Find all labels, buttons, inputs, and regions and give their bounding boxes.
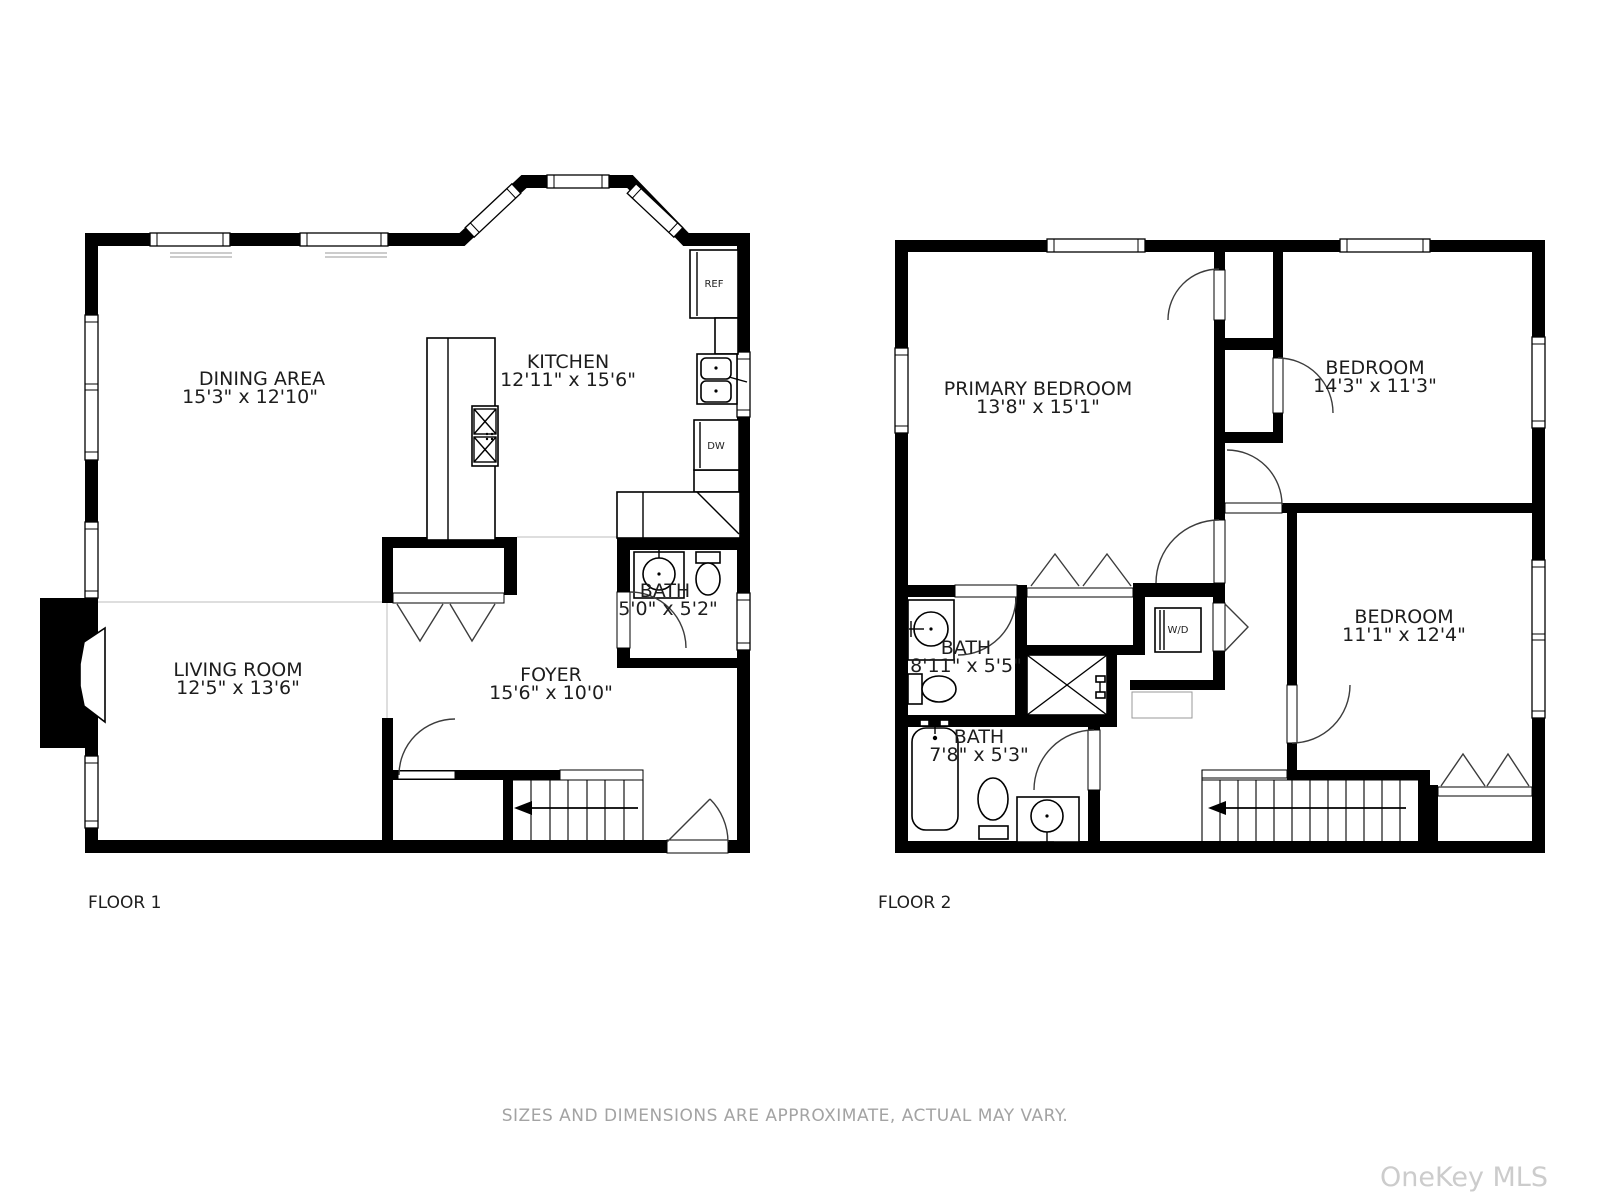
bay-window	[465, 184, 521, 237]
window	[300, 233, 388, 246]
floor-2-plan: PRIMARY BEDROOM 13'8" x 15'1" BEDROOM 14…	[878, 239, 1545, 913]
floor-1-doors	[397, 592, 728, 842]
window	[85, 522, 98, 598]
door-arc	[1168, 269, 1219, 320]
floorplan-page: DINING AREA 15'3" x 12'10" KITCHEN 12'11…	[0, 0, 1600, 1200]
door-arc	[399, 719, 455, 775]
toilet-icon	[978, 778, 1008, 839]
room-dims-foyer: 15'6" x 10'0"	[489, 682, 613, 704]
floor-1-door-openings	[393, 592, 728, 853]
window	[85, 315, 98, 460]
toilet-icon	[696, 552, 720, 595]
bifold-closet-doors	[397, 604, 495, 641]
disclaimer-text: SIZES AND DIMENSIONS ARE APPROXIMATE, AC…	[502, 1106, 1068, 1126]
room-dims-primary: 13'8" x 15'1"	[976, 396, 1100, 418]
door-arc	[1156, 520, 1219, 583]
stove-icon	[472, 406, 498, 466]
floor-1-title: FLOOR 1	[88, 893, 161, 913]
window	[1532, 337, 1545, 428]
stairs-direction-arrow	[514, 801, 638, 815]
room-dims-dining: 15'3" x 12'10"	[182, 386, 318, 408]
bathtub-icon	[912, 720, 958, 830]
window	[895, 348, 908, 433]
floor-1-plan: DINING AREA 15'3" x 12'10" KITCHEN 12'11…	[40, 175, 750, 913]
shower-icon	[1027, 655, 1107, 715]
washer-dryer-label: W/D	[1168, 625, 1189, 636]
window	[737, 352, 750, 417]
window	[1532, 560, 1545, 718]
bay-window	[547, 175, 609, 188]
room-dims-bedroom-tr: 14'3" x 11'3"	[1313, 375, 1437, 397]
bathroom-sink-icon	[1017, 797, 1079, 844]
stairs-floor-2	[1202, 770, 1418, 841]
room-dims-bath-lower: 7'8" x 5'3"	[929, 744, 1029, 766]
door-arc	[1292, 685, 1350, 743]
room-dims-kitchen: 12'11" x 15'6"	[500, 369, 636, 391]
window	[1047, 239, 1145, 252]
bifold-closet-doors	[1441, 754, 1529, 786]
window	[737, 593, 750, 650]
hall-nook	[1132, 692, 1192, 718]
room-dims-bedroom-br: 11'1" x 12'4"	[1342, 624, 1466, 646]
window	[150, 233, 230, 246]
bifold-closet-doors	[1031, 554, 1131, 586]
room-dims-living: 12'5" x 13'6"	[176, 677, 300, 699]
window	[1340, 239, 1430, 252]
stairs-floor-1	[513, 770, 643, 840]
window	[85, 756, 98, 828]
door-arc	[1034, 730, 1094, 790]
floor-2-title: FLOOR 2	[878, 893, 951, 913]
toilet-icon	[908, 674, 956, 704]
entry-door-arc	[667, 799, 728, 842]
door-swing	[1225, 604, 1248, 651]
room-dims-bath-upper: 8'11" x 5'5"	[910, 655, 1022, 677]
room-dims-bath-f1: 5'0" x 5'2"	[618, 598, 718, 620]
bay-window	[627, 184, 683, 237]
watermark-text: OneKey MLS	[1380, 1162, 1548, 1193]
dishwasher-label: DW	[707, 441, 725, 452]
floorplan-canvas: DINING AREA 15'3" x 12'10" KITCHEN 12'11…	[0, 0, 1600, 1200]
door-arc	[1227, 450, 1282, 505]
fridge-label: REF	[704, 279, 723, 290]
